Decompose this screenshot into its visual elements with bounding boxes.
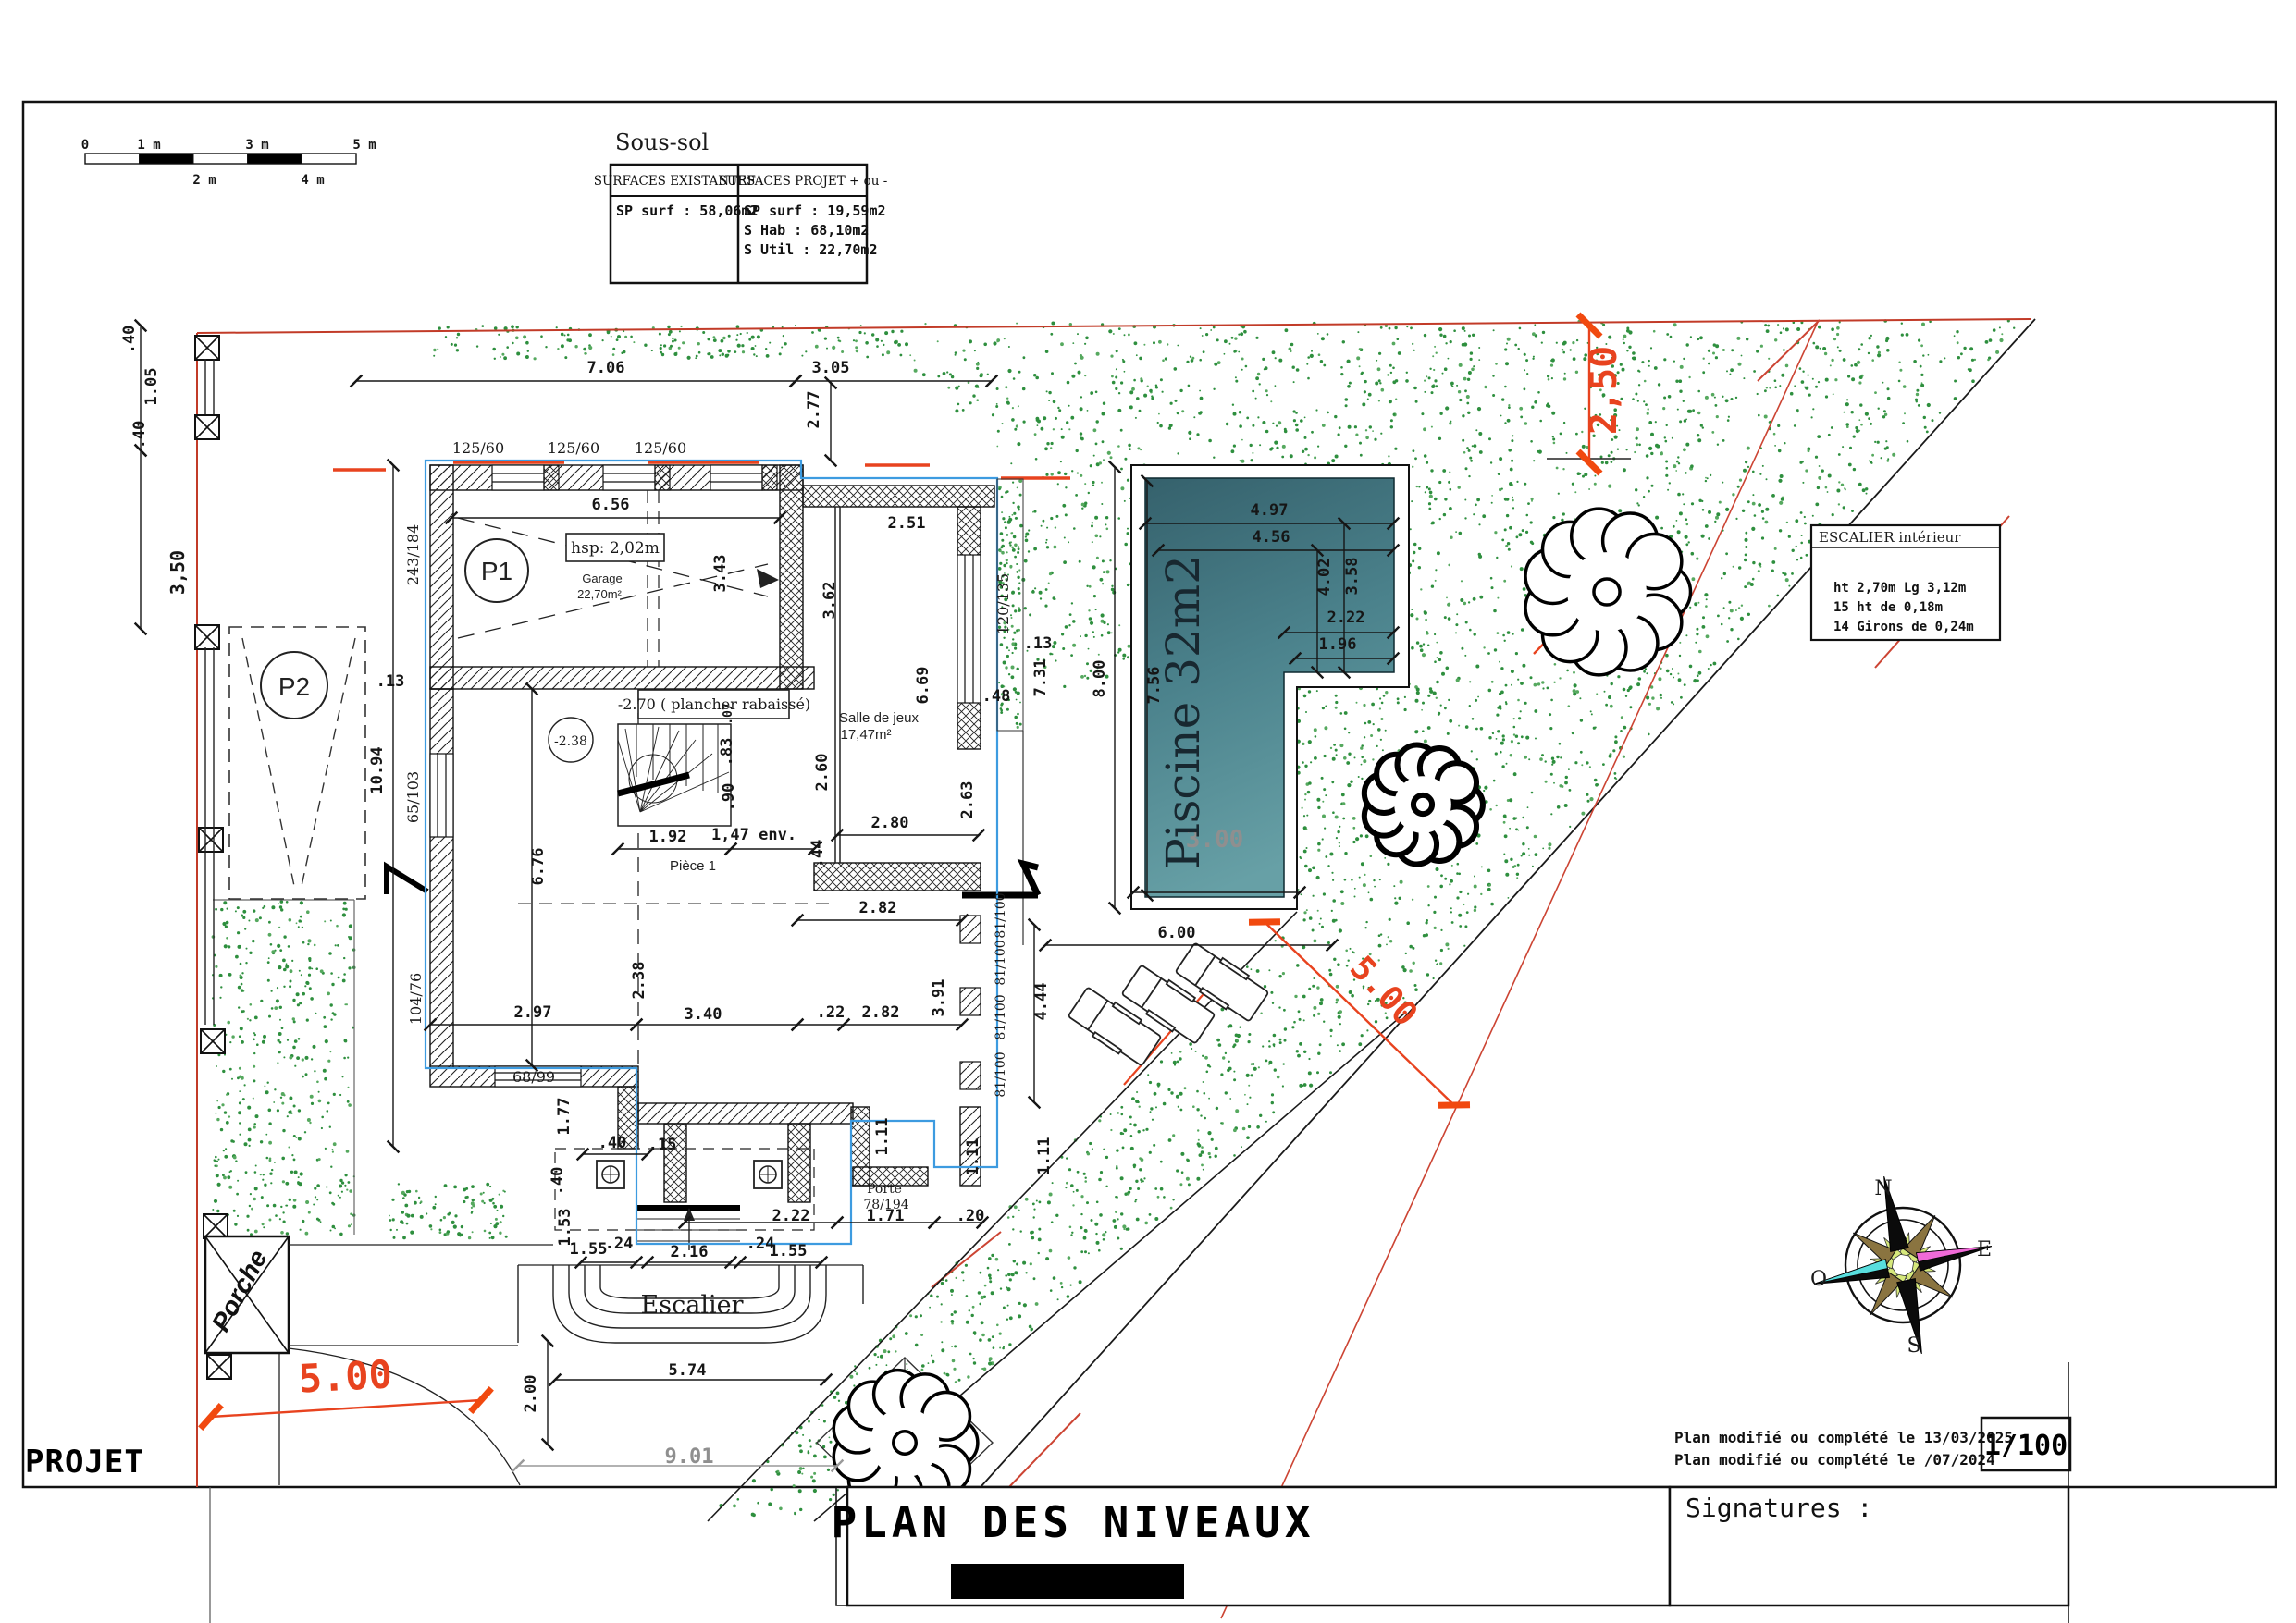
plan-labels: 01 m3 m5 m2 m4 m7.063.052.776.563.433.62… [81, 129, 1992, 1469]
plan-label: 1 m [137, 138, 160, 153]
dimension-line [542, 1335, 554, 1451]
plan-label: .90 [720, 783, 738, 812]
plan-label: .44 [809, 840, 827, 868]
plan-label: 9.01 [665, 1445, 714, 1469]
plan-label: 65/103 [404, 771, 422, 823]
plan-canvas: SURFACES EXISTANTES SURFACES PROJET + ou… [0, 0, 2296, 1623]
plan-label: 2.38 [630, 962, 648, 1000]
dimension-line [1249, 922, 1470, 1106]
plan-label: .13 [1024, 634, 1053, 653]
plan-label: 3.58 [1343, 558, 1362, 596]
plan-label: Escalier [641, 1291, 744, 1320]
fence-post-icon [204, 1214, 228, 1238]
plan-label: 5.00 [297, 1351, 393, 1401]
plan-label: 1.55 [770, 1242, 808, 1260]
project-label: PROJET [25, 1444, 144, 1481]
fence-post-icon [195, 415, 219, 439]
plan-label: 104/76 [407, 973, 425, 1025]
plan-label: 81/100 [994, 940, 1008, 985]
plan-label: 3.40 [685, 1005, 722, 1024]
plan-label: 125/60 [452, 439, 504, 457]
plan-label: 5.00 [1342, 949, 1425, 1033]
stair-note-line: 15 ht de 0,18m [1833, 600, 1943, 615]
plan-label: 7.31 [1031, 659, 1050, 697]
plan-label: P2 [278, 672, 310, 701]
plan-label: .22 [817, 1003, 846, 1022]
plan-label: 2.63 [958, 781, 977, 819]
fence-post-icon [201, 1029, 225, 1053]
plan-label: 3.91 [930, 979, 948, 1017]
floor-plan-sheet: SURFACES EXISTANTES SURFACES PROJET + ou… [0, 0, 2296, 1623]
sheet-title: PLAN DES NIVEAUX [831, 1497, 1315, 1547]
plan-label: 10.94 [368, 746, 387, 793]
plan-label: 2.60 [813, 754, 832, 792]
plan-label: Pièce 1 [670, 858, 716, 874]
lounge-chairs [1067, 941, 1270, 1068]
plan-label: 2,50 [1583, 346, 1625, 435]
fence-post-icon [195, 336, 219, 360]
fence-lines [205, 359, 214, 1025]
parking-area [229, 627, 365, 899]
plan-label: .15 [648, 1136, 677, 1154]
plan-label: 7.06 [587, 359, 625, 377]
plan-label: 81/100 [994, 892, 1008, 938]
dimension-line [825, 377, 837, 467]
plan-label: 78/194 [863, 1198, 908, 1212]
plan-label: .48 [982, 687, 1011, 706]
plan-label: 2.22 [772, 1207, 810, 1225]
plan-label: 5.74 [669, 1361, 707, 1380]
plan-label: -2.70 ( plancher rabaissé) [618, 695, 810, 713]
plan-label: 1.11 [964, 1138, 982, 1176]
plan-line [1006, 1413, 1080, 1491]
plan-label: .40 [549, 1167, 567, 1196]
dimension-line [135, 445, 147, 635]
plan-label: 2.51 [888, 514, 926, 533]
stair-note-box: ESCALIER intérieur ht 2,70m Lg 3,12m 15 … [1811, 525, 2000, 640]
plan-label: Porte [867, 1182, 902, 1197]
plan-label: 1.05 [142, 368, 161, 406]
plan-label: .40 [599, 1134, 627, 1152]
plan-label: 6.00 [1158, 924, 1196, 942]
fence-post-icon [195, 625, 219, 649]
tree-icon [1364, 744, 1483, 864]
fence-post-icon [207, 1355, 231, 1379]
plan-label: 2.16 [671, 1243, 709, 1261]
signatures-label: Signatures : [1685, 1493, 1872, 1523]
plan-label: .40 [130, 421, 149, 449]
table-cell: SP surf : 58,06m2 [616, 203, 759, 219]
dimension-line [388, 460, 400, 1153]
plan-label: Garage [582, 572, 622, 585]
table-cell: S Util : 22,70m2 [744, 241, 878, 258]
plan-label: 1.77 [555, 1098, 574, 1136]
plan-label: 22,70m² [577, 587, 622, 601]
plan-label: .40 [120, 326, 139, 354]
plan-label: .20 [957, 1207, 985, 1225]
plan-label: 6.69 [914, 667, 932, 705]
plan-label: 8.00 [1091, 660, 1109, 698]
plan-label: 3 m [245, 138, 268, 153]
plan-label: 2.97 [514, 1003, 552, 1022]
plan-label: 2 m [192, 173, 216, 188]
plan-label: 2.22 [1327, 609, 1365, 627]
plan-label: 4.02 [1315, 559, 1334, 596]
plan-label: 4.56 [1253, 528, 1290, 547]
plan-label: 2.00 [522, 1375, 540, 1413]
plan-label: E [1977, 1238, 1992, 1261]
plan-label: 125/60 [548, 439, 599, 457]
plan-label: 6.76 [529, 848, 548, 886]
plan-label: 243/184 [404, 524, 422, 585]
plan-label: 81/100 [994, 1051, 1008, 1097]
plan-label: O [1810, 1268, 1827, 1291]
table-cell: S Hab : 68,10m2 [744, 222, 869, 239]
plan-label: Sous-sol [615, 129, 709, 155]
plan-label: S [1907, 1334, 1920, 1358]
plan-label: 0 [81, 138, 89, 153]
plan-label: 1,47 env. [711, 826, 796, 844]
plan-label: .24 [605, 1235, 634, 1253]
plan-label: 2.80 [871, 814, 909, 832]
plan-label: -2.38 [554, 734, 587, 749]
dimension-line [1109, 461, 1121, 915]
fence-post-icon [199, 828, 223, 852]
tree-icon [1525, 509, 1690, 675]
revision-line: Plan modifié ou complété le /07/2024 [1674, 1451, 1995, 1469]
title-block: PLAN DES NIVEAUX 1/100 Signatures : Plan… [25, 1362, 2070, 1623]
plan-label: 4 m [301, 173, 324, 188]
plan-label: 3.43 [711, 555, 730, 593]
plan-line [197, 319, 2031, 333]
dimension-line [351, 375, 802, 387]
stair-note-line: 14 Girons de 0,24m [1833, 620, 1974, 634]
plan-label: 3,50 [167, 550, 189, 595]
table-col2-header: SURFACES PROJET + ou - [719, 174, 888, 189]
table-cell: SP surf : 19,59m2 [744, 203, 886, 219]
plan-label: P1 [481, 557, 512, 585]
plan-label: 3.05 [812, 359, 850, 377]
plan-label: 2.82 [859, 899, 897, 917]
plan-label: Piscine 32m2 [1156, 555, 1210, 869]
compass-rose [1796, 1158, 2010, 1372]
plan-label: 3.62 [821, 582, 839, 620]
redacted-name-bar [951, 1564, 1184, 1599]
plan-label: .13 [376, 672, 405, 691]
plan-label: 6.56 [592, 496, 630, 514]
stair-note-title: ESCALIER intérieur [1819, 529, 1961, 546]
plan-label: 1.11 [873, 1118, 892, 1156]
revision-line: Plan modifié ou complété le 13/03/2025 [1674, 1429, 2013, 1446]
plan-label: 4.44 [1032, 983, 1051, 1021]
plan-label: 17,47m² [840, 727, 891, 743]
plan-label: 1.92 [649, 828, 687, 846]
plan-label: 1.11 [1035, 1137, 1054, 1175]
plan-label: 120/135 [994, 573, 1012, 634]
plan-label: 81/100 [994, 994, 1008, 1039]
plan-label: N [1874, 1177, 1892, 1200]
plan-label: 125/60 [635, 439, 686, 457]
plan-label: .83 [718, 738, 736, 767]
plan-label: 68/99 [512, 1068, 555, 1086]
house [387, 465, 1038, 1343]
surfaces-table: SURFACES EXISTANTES SURFACES PROJET + ou… [594, 165, 888, 283]
plan-label: 1.55 [570, 1240, 608, 1259]
plan-label: 4.97 [1251, 501, 1289, 520]
scale-bar [85, 154, 356, 164]
plan-label: 1.96 [1319, 635, 1357, 654]
plan-label: hsp: 2,02m [571, 539, 660, 558]
plan-label: Salle de jeux [839, 710, 919, 726]
plan-label: 2.82 [862, 1003, 900, 1022]
stair-note-line: ht 2,70m Lg 3,12m [1833, 581, 1966, 596]
interior-stair-icon [618, 724, 731, 826]
plan-label: 2.77 [805, 391, 823, 429]
plan-label: 5 m [352, 138, 376, 153]
